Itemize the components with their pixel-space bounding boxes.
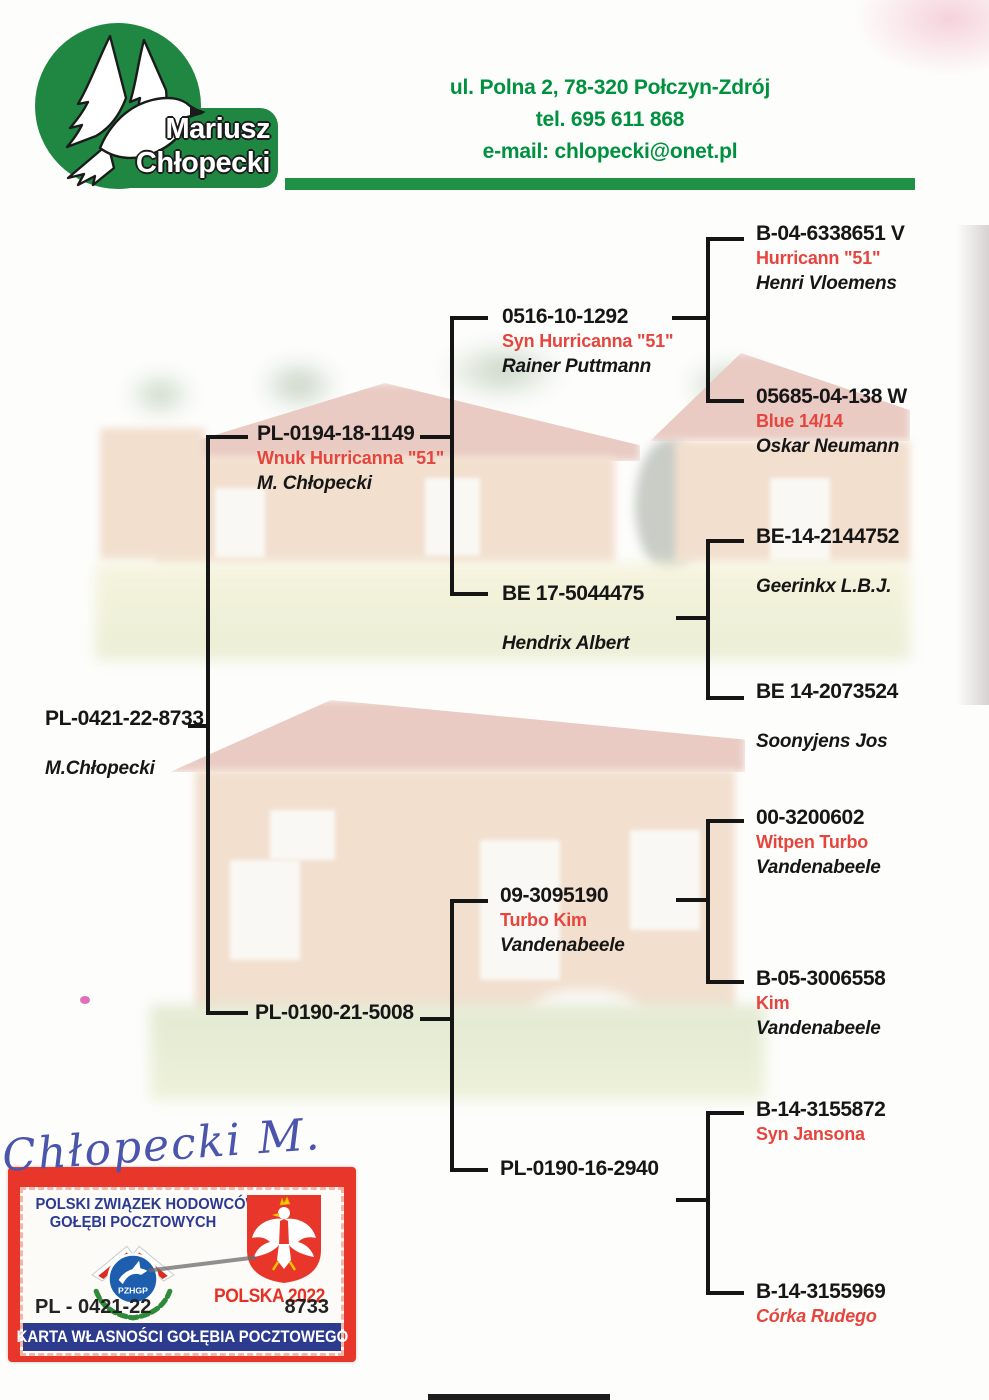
pedigree-connector-line xyxy=(706,819,710,984)
breeder-name: Vandenabeele xyxy=(756,1016,885,1041)
background-window xyxy=(630,830,700,930)
breeder-name xyxy=(255,1050,414,1075)
breeder-name xyxy=(756,1147,885,1172)
contact-address: ul. Polna 2, 78-320 Połczyn-Zdrój xyxy=(420,72,800,104)
pedigree-connector-line xyxy=(206,435,248,439)
pedigree-connector-line xyxy=(420,1017,454,1021)
ring-number: B-14-3155872 xyxy=(756,1097,885,1122)
logo-name-line1: Mariusz xyxy=(118,112,270,146)
pigeon-nickname xyxy=(255,1025,414,1050)
breeder-name: M. Chłopecki xyxy=(257,471,444,496)
association-name-line2: GOŁĘBI POCZTOWYCH xyxy=(35,1214,230,1232)
ring-number: BE 14-2073524 xyxy=(756,679,898,704)
pigeon-nickname: Wnuk Hurricanna "51" xyxy=(257,446,444,471)
pigeon-nickname: Córka Rudego xyxy=(756,1304,885,1329)
association-name: POLSKI ZWIĄZEK HODOWCÓW GOŁĘBI POCZTOWYC… xyxy=(35,1196,230,1232)
pedigree-node-grandparent-4: PL-0190-16-2940 xyxy=(500,1156,659,1231)
pedigree-node-great-grandparent-7: B-14-3155872 Syn Jansona xyxy=(756,1097,885,1172)
pigeon-nickname xyxy=(45,731,204,756)
pedigree-connector-line xyxy=(706,399,744,403)
ring-number: 05685-04-138 W xyxy=(756,384,907,409)
background-window xyxy=(230,860,300,960)
breeder-name: Henri Vloemens xyxy=(756,271,905,296)
pedigree-connector-line xyxy=(706,539,744,543)
pedigree-connector-line xyxy=(706,1111,744,1115)
card-ring-prefix: PL - 0421-22 xyxy=(35,1296,151,1319)
pigeon-nickname: Kim xyxy=(756,991,885,1016)
pedigree-node-grandparent-1: 0516-10-1292 Syn Hurricanna "51" Rainer … xyxy=(502,304,673,379)
pedigree-node-great-grandparent-5: 00-3200602 Witpen Turbo Vandenabeele xyxy=(756,805,881,880)
card-ring-row: PL - 0421-22 8733 xyxy=(35,1296,329,1319)
ring-number: PL-0190-16-2940 xyxy=(500,1156,659,1181)
card-ring-serial: 8733 xyxy=(285,1296,330,1319)
breeder-name: Oskar Neumann xyxy=(756,434,907,459)
pedigree-node-great-grandparent-4: BE 14-2073524 Soonyjens Jos xyxy=(756,679,898,754)
pigeon-nickname: Witpen Turbo xyxy=(756,830,881,855)
ring-number: PL-0190-21-5008 xyxy=(255,1000,414,1025)
ring-number: B-14-3155969 xyxy=(756,1279,885,1304)
breeder-name: Rainer Puttmann xyxy=(502,354,673,379)
polish-eagle-emblem xyxy=(243,1192,325,1286)
pedigree-node-grandparent-2: BE 17-5044475 Hendrix Albert xyxy=(502,581,644,656)
contact-block: ul. Polna 2, 78-320 Połczyn-Zdrój tel. 6… xyxy=(420,72,800,168)
pigeon-nickname: Turbo Kim xyxy=(500,908,625,933)
pedigree-node-subject: PL-0421-22-8733 M.Chłopecki xyxy=(45,706,204,781)
pigeon-nickname xyxy=(756,549,899,574)
pedigree-node-great-grandparent-8: B-14-3155969 Córka Rudego xyxy=(756,1279,885,1354)
ring-number: BE-14-2144752 xyxy=(756,524,899,549)
pzhgp-emblem-text: PZHGP xyxy=(118,1285,148,1295)
pedigree-connector-line xyxy=(206,1011,248,1015)
pigeon-nickname xyxy=(500,1181,659,1206)
pedigree-node-sire: PL-0194-18-1149 Wnuk Hurricanna "51" M. … xyxy=(257,421,444,496)
pedigree-node-grandparent-3: 09-3095190 Turbo Kim Vandenabeele xyxy=(500,883,625,958)
pigeon-nickname xyxy=(756,704,898,729)
card-title-banner: KARTA WŁASNOŚCI GOŁĘBIA POCZTOWEGO xyxy=(23,1323,341,1351)
card-title-text: KARTA WŁASNOŚCI GOŁĘBIA POCZTOWEGO xyxy=(16,1327,348,1347)
pigeon-nickname: Syn Hurricanna "51" xyxy=(502,329,673,354)
pedigree-connector-line xyxy=(706,980,744,984)
pedigree-connector-line xyxy=(450,592,488,596)
contact-phone: tel. 695 611 868 xyxy=(420,104,800,136)
breeder-name: Geerinkx L.B.J. xyxy=(756,574,899,599)
association-name-line1: POLSKI ZWIĄZEK HODOWCÓW xyxy=(35,1196,230,1214)
ring-number: 09-3095190 xyxy=(500,883,625,908)
breeder-name-logo: Mariusz Chłopecki xyxy=(118,112,270,180)
pedigree-connector-line xyxy=(676,898,710,902)
background-photo-lower-loft xyxy=(150,695,765,1100)
pedigree-connector-line xyxy=(706,819,744,823)
pedigree-node-dam: PL-0190-21-5008 xyxy=(255,1000,414,1075)
scan-artifact-pink-dot xyxy=(80,996,90,1004)
background-roof xyxy=(170,700,745,772)
breeder-name: Vandenabeele xyxy=(756,855,881,880)
background-window xyxy=(215,488,265,558)
pedigree-connector-line xyxy=(450,1168,488,1172)
background-grass xyxy=(150,1005,765,1100)
pedigree-connector-line xyxy=(450,899,454,1172)
breeder-name: M.Chłopecki xyxy=(45,756,204,781)
pigeon-nickname: Hurricann "51" xyxy=(756,246,905,271)
scan-artifact-gray-streak xyxy=(950,225,989,705)
ring-number: B-05-3006558 xyxy=(756,966,885,991)
ring-number: PL-0421-22-8733 xyxy=(45,706,204,731)
pedigree-connector-line xyxy=(706,237,744,241)
pedigree-connector-line xyxy=(706,1111,710,1295)
ownership-card-inner: POLSKI ZWIĄZEK HODOWCÓW GOŁĘBI POCZTOWYC… xyxy=(20,1187,344,1356)
pedigree-node-great-grandparent-1: B-04-6338651 V Hurricann "51" Henri Vloe… xyxy=(756,221,905,296)
scan-artifact-pink-corner xyxy=(856,0,989,75)
pedigree-connector-line xyxy=(206,435,210,1015)
contact-email: e-mail: chlopecki@onet.pl xyxy=(420,136,800,168)
scan-artifact-bottom-bar xyxy=(428,1394,610,1400)
breeder-name xyxy=(500,1206,659,1231)
background-wall xyxy=(100,428,205,560)
pedigree-connector-line xyxy=(676,616,710,620)
ring-number: BE 17-5044475 xyxy=(502,581,644,606)
pigeon-nickname: Blue 14/14 xyxy=(756,409,907,434)
pedigree-connector-line xyxy=(676,1198,710,1202)
pigeon-nickname xyxy=(502,606,644,631)
breeder-name: Soonyjens Jos xyxy=(756,729,898,754)
ring-number: 00-3200602 xyxy=(756,805,881,830)
ring-number: PL-0194-18-1149 xyxy=(257,421,444,446)
ring-number: 0516-10-1292 xyxy=(502,304,673,329)
pigeon-nickname: Syn Jansona xyxy=(756,1122,885,1147)
breeder-name xyxy=(756,1329,885,1354)
header-divider-bar xyxy=(285,178,915,190)
pedigree-connector-line xyxy=(706,539,710,700)
pedigree-connector-line xyxy=(450,316,454,596)
ring-number: B-04-6338651 V xyxy=(756,221,905,246)
pedigree-connector-line xyxy=(450,316,488,320)
pedigree-document: Mariusz Chłopecki ul. Polna 2, 78-320 Po… xyxy=(0,0,989,1400)
background-ac-unit xyxy=(270,810,335,860)
pedigree-connector-line xyxy=(706,237,710,403)
pedigree-node-great-grandparent-6: B-05-3006558 Kim Vandenabeele xyxy=(756,966,885,1041)
pedigree-connector-line xyxy=(706,1291,744,1295)
pedigree-connector-line xyxy=(706,696,744,700)
breeder-name: Vandenabeele xyxy=(500,933,625,958)
pedigree-connector-line xyxy=(450,899,488,903)
pedigree-node-great-grandparent-2: 05685-04-138 W Blue 14/14 Oskar Neumann xyxy=(756,384,907,459)
logo-name-line2: Chłopecki xyxy=(118,146,270,180)
breeder-name: Hendrix Albert xyxy=(502,631,644,656)
pedigree-node-great-grandparent-3: BE-14-2144752 Geerinkx L.B.J. xyxy=(756,524,899,599)
pedigree-connector-line xyxy=(672,316,710,320)
